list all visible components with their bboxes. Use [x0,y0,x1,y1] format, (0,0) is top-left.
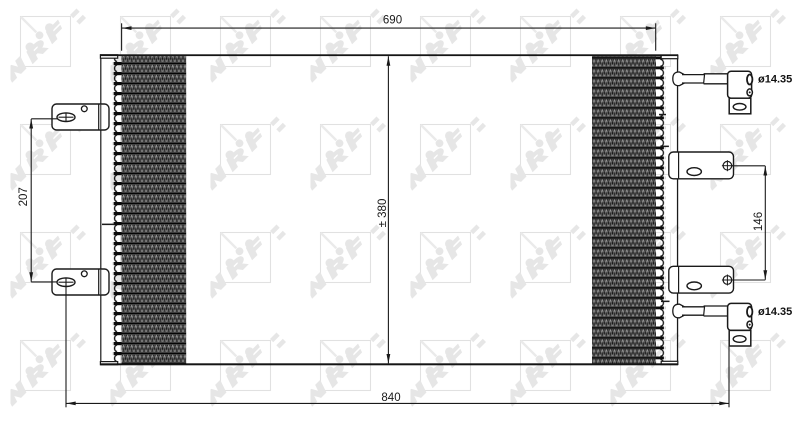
svg-text:146: 146 [753,212,765,231]
svg-text:207: 207 [18,187,30,206]
svg-text:± 380: ± 380 [377,199,389,228]
svg-text:690: 690 [383,15,402,27]
svg-text:ø14.35: ø14.35 [758,74,792,86]
svg-text:840: 840 [381,392,400,404]
svg-text:ø14.35: ø14.35 [758,306,792,318]
